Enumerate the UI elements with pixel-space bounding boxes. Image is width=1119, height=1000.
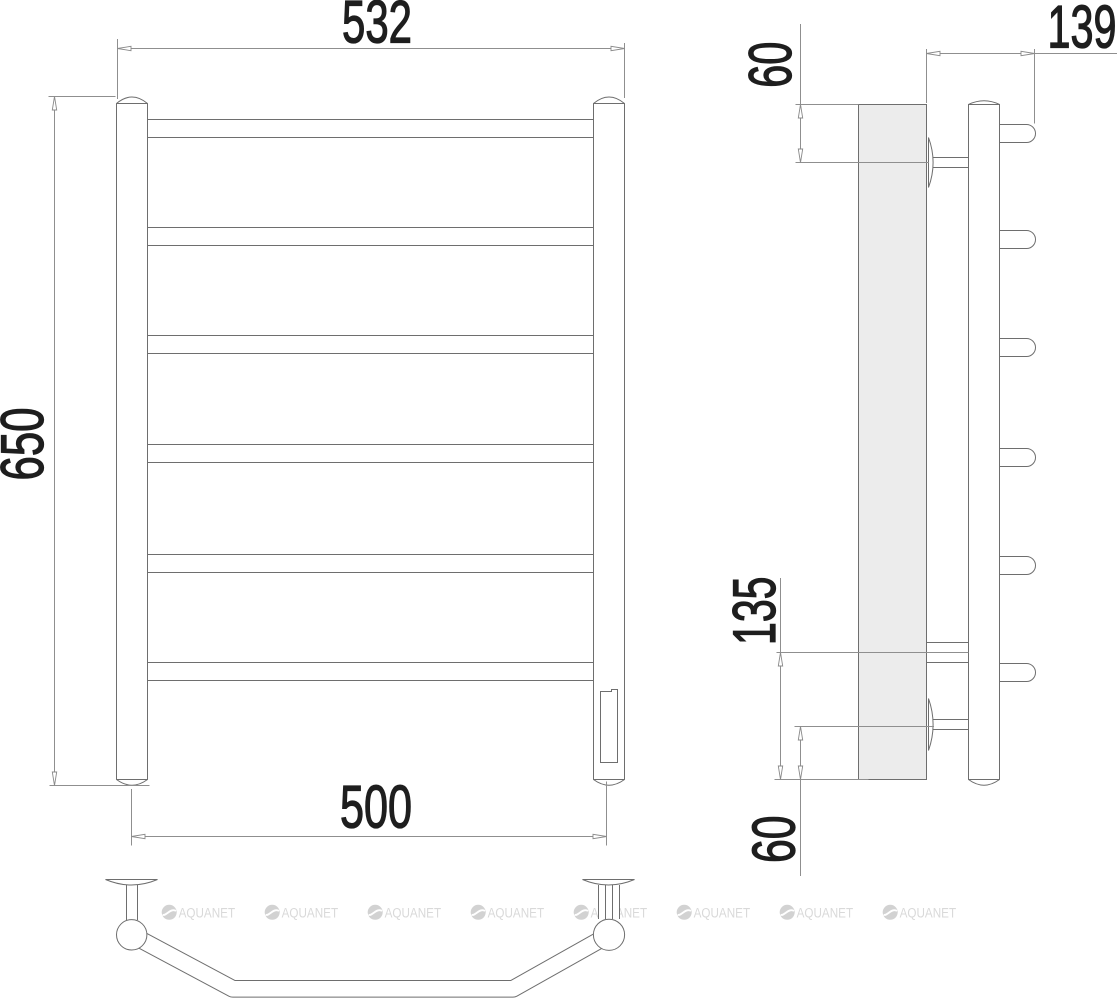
svg-text:AQUANET: AQUANET (385, 905, 442, 920)
svg-text:139: 139 (1048, 0, 1117, 60)
svg-text:650: 650 (0, 408, 56, 481)
svg-text:60: 60 (740, 816, 808, 864)
svg-text:AQUANET: AQUANET (179, 905, 236, 920)
svg-text:AQUANET: AQUANET (694, 905, 751, 920)
svg-text:AQUANET: AQUANET (797, 905, 854, 920)
svg-text:500: 500 (340, 773, 412, 841)
svg-text:135: 135 (720, 577, 788, 646)
svg-text:AQUANET: AQUANET (282, 905, 339, 920)
svg-text:60: 60 (736, 42, 804, 88)
svg-text:AQUANET: AQUANET (900, 905, 957, 920)
svg-text:532: 532 (342, 0, 412, 56)
svg-text:AQUANET: AQUANET (488, 905, 544, 920)
